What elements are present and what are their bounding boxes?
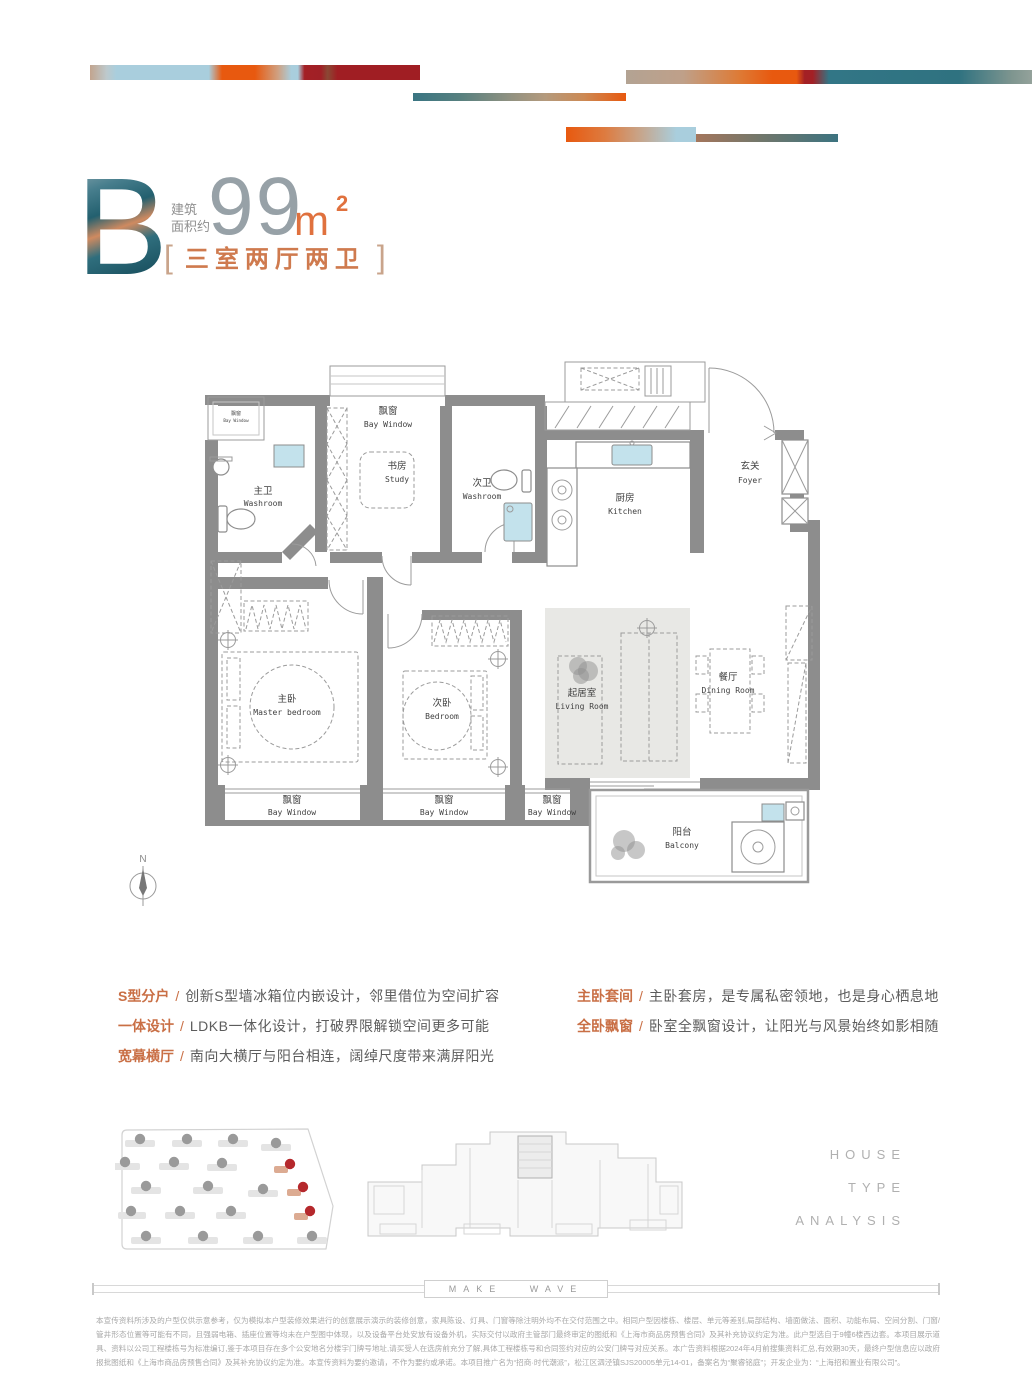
layout-text: 三室两厅两卫 (185, 239, 365, 274)
room-label-bay2-en: Bay Window (420, 808, 468, 817)
floor-plan: 飘窗 Bay Window 主卫 Washroom 飘窗 Bay Window … (192, 356, 832, 896)
master-bath-toilet (227, 509, 255, 529)
room-label-study-cn: 书房 (387, 460, 406, 472)
room-label-bay-small-en: Bay Window (223, 418, 249, 423)
area-unit: m (294, 200, 329, 242)
room-label-bay-top-cn: 飘窗 (378, 405, 397, 417)
band-line (94, 1285, 424, 1293)
feature-desc: LDKB一体化设计，打破界限解锁空间更多可能 (190, 1018, 490, 1034)
hta-line-3: ANALYSIS (795, 1204, 906, 1237)
room-label-foyer-cn: 玄关 (740, 460, 760, 472)
brochure-page: B 建筑 面积约 99 m 2 [ 三室两厅两卫 ] (0, 0, 1032, 1400)
compass-north-label: N (139, 854, 146, 865)
make-wave-band: MAKE WAVE (92, 1280, 940, 1298)
room-label-kitchen-cn: 厨房 (615, 492, 634, 504)
layout-row: [ 三室两厅两卫 ] (164, 239, 386, 274)
feature-row: 主卧套间/主卧套房，是专属私密领地，也是身心栖息地 (577, 986, 939, 1000)
room-label-master-cn: 主卧 (277, 693, 297, 705)
stair-core (518, 1136, 552, 1178)
room-label-dining-cn: 餐厅 (718, 671, 738, 683)
feature-row: 一体设计/LDKB一体化设计，打破界限解锁空间更多可能 (118, 1016, 500, 1030)
feature-label: 宽幕横厅 (118, 1048, 174, 1064)
second-bath-toilet (491, 470, 517, 490)
room-label-balcony-en: Balcony (665, 841, 699, 850)
balcony-sink (762, 804, 784, 821)
room-label-foyer-en: Foyer (738, 476, 762, 485)
band-line (608, 1285, 938, 1293)
hta-line-1: HOUSE (795, 1138, 906, 1171)
room-label-bedroom-cn: 次卧 (432, 697, 452, 709)
band-end-tick (938, 1283, 940, 1295)
feature-desc: 主卧套房，是专属私密领地，也是身心栖息地 (649, 988, 939, 1004)
feature-row: 全卧飘窗/卧室全飘窗设计，让阳光与风景始终如影相随 (577, 1016, 939, 1030)
deco-bar-top-right (626, 70, 1032, 84)
room-label-master-bath-en: Washroom (244, 499, 283, 508)
deco-bar-lower-right (696, 134, 838, 142)
feature-label: 全卧飘窗 (577, 1018, 633, 1034)
feature-label: S型分户 (118, 988, 169, 1004)
room-label-living-cn: 起居室 (568, 687, 597, 699)
feature-desc: 创新S型墙冰箱位内嵌设计，邻里借位为空间扩容 (185, 988, 499, 1004)
bracket-left: [ (164, 241, 173, 273)
features-left-column: S型分户/创新S型墙冰箱位内嵌设计，邻里借位为空间扩容 一体设计/LDKB一体化… (118, 986, 500, 1076)
room-label-dining-en: Dining Room (702, 686, 755, 695)
make-wave-label: MAKE WAVE (424, 1280, 609, 1298)
kitchen-sink (612, 445, 652, 465)
feature-row: S型分户/创新S型墙冰箱位内嵌设计，邻里借位为空间扩容 (118, 986, 500, 1000)
area-label-line1: 建筑 (171, 201, 210, 218)
room-label-master-en: Master bedroom (253, 708, 321, 717)
room-label-bay-small-cn: 飘窗 (231, 410, 241, 417)
feature-label: 一体设计 (118, 1018, 174, 1034)
site-plan (115, 1122, 345, 1257)
bracket-right: ] (377, 241, 386, 273)
second-bath-shower (504, 503, 532, 541)
room-label-kitchen-en: Kitchen (608, 507, 642, 516)
room-label-living-en: Living Room (556, 702, 609, 711)
disclaimer-text: 本宣传资料所涉及的户型仅供示意参考，仅为模拟本户型装修效果进行的创意展示演示的装… (96, 1314, 940, 1370)
room-label-second-bath-cn: 次卫 (472, 477, 492, 489)
deco-bar-top-left (90, 65, 420, 80)
area-value: 99 (208, 166, 303, 248)
room-label-second-bath-en: Washroom (463, 492, 502, 501)
room-label-balcony-cn: 阳台 (672, 826, 691, 838)
area-label: 建筑 面积约 (171, 201, 210, 235)
area-label-line2: 面积约 (171, 218, 210, 235)
feature-row: 宽幕横厅/南向大横厅与阳台相连，阔绰尺度带来满屏阳光 (118, 1046, 500, 1060)
room-label-bay-top-en: Bay Window (364, 420, 412, 429)
room-label-bay3-en: Bay Window (528, 808, 576, 817)
deco-bar-thin-middle (413, 93, 626, 101)
room-label-bedroom-en: Bedroom (425, 712, 459, 721)
house-type-analysis: HOUSE TYPE ANALYSIS (795, 1138, 906, 1237)
features-right-column: 主卧套间/主卧套房，是专属私密领地，也是身心栖息地 全卧飘窗/卧室全飘窗设计，让… (577, 986, 939, 1046)
room-label-study-en: Study (385, 475, 409, 484)
building-key-plan (360, 1120, 690, 1260)
room-label-bay1-cn: 飘窗 (282, 794, 301, 806)
room-label-bay3-cn: 飘窗 (542, 794, 561, 806)
feature-desc: 南向大横厅与阳台相连，阔绰尺度带来满屏阳光 (190, 1048, 495, 1064)
room-label-bay2-cn: 飘窗 (434, 794, 453, 806)
feature-label: 主卧套间 (577, 988, 633, 1004)
feature-desc: 卧室全飘窗设计，让阳光与风景始终如影相随 (649, 1018, 939, 1034)
deco-bar-lower-left (566, 127, 696, 142)
master-bath-sink (274, 445, 304, 467)
room-label-master-bath-cn: 主卫 (253, 485, 273, 497)
unit-letter: B (76, 158, 168, 296)
north-compass-icon: N (126, 852, 160, 910)
kitchen-counter-side (547, 468, 577, 566)
area-unit-superscript: 2 (336, 193, 348, 215)
hta-line-2: TYPE (795, 1171, 906, 1204)
room-label-bay1-en: Bay Window (268, 808, 316, 817)
